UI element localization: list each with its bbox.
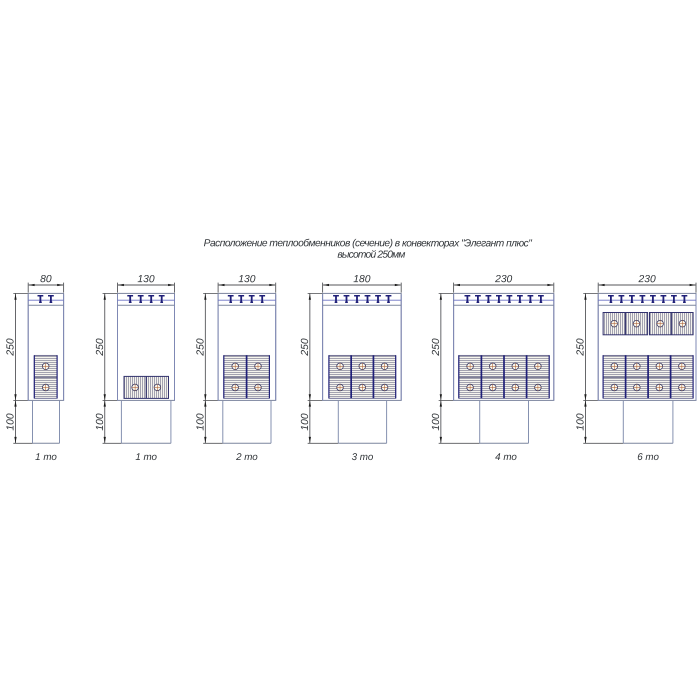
svg-text:2 то: 2 то (235, 452, 258, 463)
svg-text:100: 100 (431, 413, 442, 430)
svg-text:100: 100 (576, 413, 587, 430)
svg-text:250: 250 (6, 338, 17, 356)
svg-text:250: 250 (300, 338, 311, 356)
svg-text:130: 130 (137, 274, 154, 285)
svg-text:130: 130 (238, 274, 255, 285)
svg-text:250: 250 (196, 338, 207, 356)
svg-text:230: 230 (494, 274, 512, 285)
svg-text:3 то: 3 то (352, 452, 374, 463)
svg-text:100: 100 (300, 413, 311, 430)
svg-text:Расположение теплообменников (: Расположение теплообменников (сечение) в… (204, 238, 533, 249)
svg-text:250: 250 (576, 338, 587, 356)
svg-text:1 то: 1 то (35, 452, 57, 463)
svg-text:100: 100 (6, 413, 17, 430)
svg-text:230: 230 (638, 274, 656, 285)
svg-text:высотой 250мм: высотой 250мм (337, 250, 405, 261)
svg-text:1 то: 1 то (135, 452, 157, 463)
svg-text:6 то: 6 то (637, 452, 659, 463)
svg-text:80: 80 (40, 274, 52, 285)
svg-text:4 то: 4 то (495, 452, 517, 463)
svg-text:250: 250 (95, 338, 106, 356)
svg-text:100: 100 (196, 413, 207, 430)
svg-text:250: 250 (431, 338, 442, 356)
svg-text:100: 100 (95, 413, 106, 430)
svg-text:180: 180 (353, 274, 370, 285)
